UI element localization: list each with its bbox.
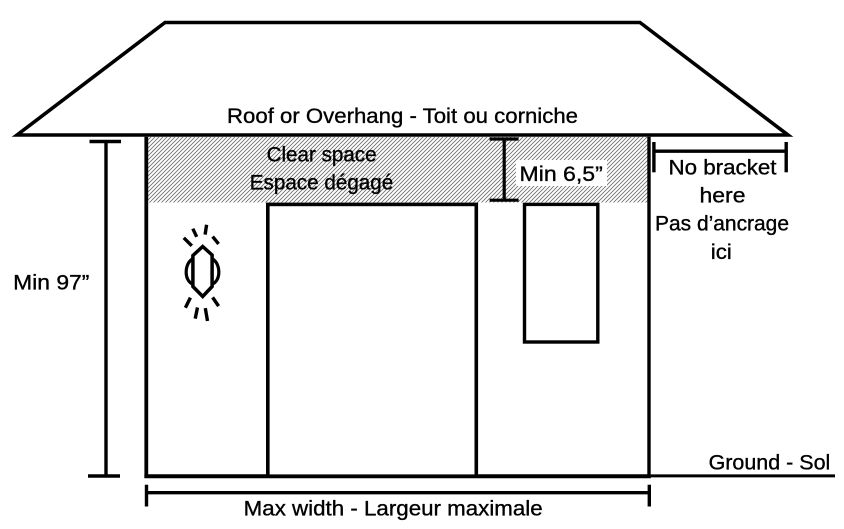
svg-text:Max width - Largeur maximale: Max width - Largeur maximale [244,497,543,521]
svg-text:Clear space: Clear space [267,143,377,167]
svg-text:here: here [700,184,746,208]
svg-text:Roof or Overhang - Toit ou cor: Roof or Overhang - Toit ou corniche [227,104,578,128]
svg-text:Ground - Sol: Ground - Sol [709,450,831,474]
svg-text:Min 6,5”: Min 6,5” [520,162,603,186]
svg-text:Espace dégagé: Espace dégagé [250,170,394,194]
svg-text:Min 97”: Min 97” [13,271,89,295]
svg-text:Pas d’ancrage: Pas d’ancrage [655,212,789,236]
svg-text:No bracket: No bracket [669,156,777,180]
svg-text:ici: ici [711,240,732,264]
